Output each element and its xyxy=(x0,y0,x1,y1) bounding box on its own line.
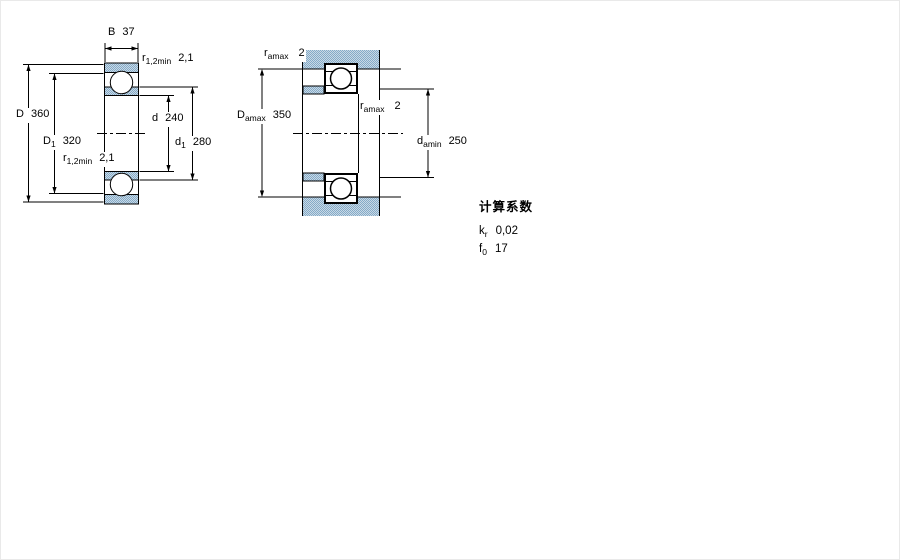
ball-bottom xyxy=(331,178,352,199)
dim-value: 280 xyxy=(193,136,211,148)
dim-symbol: D xyxy=(43,135,51,147)
dim-subscript: amax xyxy=(268,51,289,61)
dim-value: 2 xyxy=(394,100,400,112)
factor-row-f0: f017 xyxy=(479,242,533,260)
dim-label-d: d240 xyxy=(151,112,184,127)
dim-subscript: 1 xyxy=(181,140,186,150)
technical-drawing-svg xyxy=(1,1,900,560)
ball-bottom xyxy=(110,173,132,195)
dim-value: 320 xyxy=(63,135,81,147)
factor-subscript: r xyxy=(485,229,488,239)
dim-label-ra-top: ramax2 xyxy=(263,47,306,62)
dimension-D xyxy=(23,65,104,203)
dim-symbol: B xyxy=(108,26,115,38)
dim-subscript: amin xyxy=(423,139,441,149)
dimension-B xyxy=(105,43,138,62)
shaft-shoulder-top xyxy=(303,86,324,94)
dim-label-r-left: r1,2min2,1 xyxy=(62,152,115,167)
dim-subscript: 1,2min xyxy=(67,156,93,166)
dim-label-D: D360 xyxy=(15,108,50,123)
factor-row-kr: kr0,02 xyxy=(479,224,533,242)
dim-value: 2,1 xyxy=(178,52,193,64)
dimension-D1 xyxy=(49,74,104,194)
dim-value: 360 xyxy=(31,108,49,120)
dim-label-D1: D1320 xyxy=(42,135,82,150)
dim-value: 37 xyxy=(122,26,134,38)
dim-label-ra-mid: ramax2 xyxy=(359,100,402,115)
shaft-shoulder-bottom xyxy=(303,173,324,181)
dimension-Da xyxy=(260,69,264,197)
dim-subscript: 1,2min xyxy=(146,56,172,66)
ball-top xyxy=(331,68,352,89)
dim-label-Da: Damax350 xyxy=(236,109,292,124)
dim-value: 350 xyxy=(273,109,291,121)
dim-label-d1: d1280 xyxy=(174,136,212,151)
bearing-cross-section-view xyxy=(97,63,146,204)
ball-top xyxy=(110,71,132,93)
factor-value: 17 xyxy=(495,243,508,255)
dim-subscript: 1 xyxy=(51,139,56,149)
mounting-dimensions-view xyxy=(258,50,403,216)
calculation-factors: 计算系数 kr0,02 f017 xyxy=(479,196,533,260)
factor-value: 0,02 xyxy=(496,225,518,237)
dim-value: 2 xyxy=(298,47,304,59)
dim-label-r-top: r1,2min2,1 xyxy=(141,52,194,67)
dim-symbol: d xyxy=(152,112,158,124)
dim-symbol: D xyxy=(237,109,245,121)
dim-label-da: damin250 xyxy=(416,135,468,150)
bearing-drawing-page: B37 r1,2min2,1 D360 D1320 r1,2min2,1 d24… xyxy=(0,0,900,560)
dim-symbol: D xyxy=(16,108,24,120)
dim-value: 250 xyxy=(449,135,467,147)
dim-value: 240 xyxy=(165,112,183,124)
dim-value: 2,1 xyxy=(99,152,114,164)
dim-label-B: B37 xyxy=(107,26,136,41)
calculation-factors-title: 计算系数 xyxy=(479,196,533,215)
dim-subscript: amax xyxy=(364,104,385,114)
dim-subscript: amax xyxy=(245,113,266,123)
factor-subscript: 0 xyxy=(482,247,487,257)
